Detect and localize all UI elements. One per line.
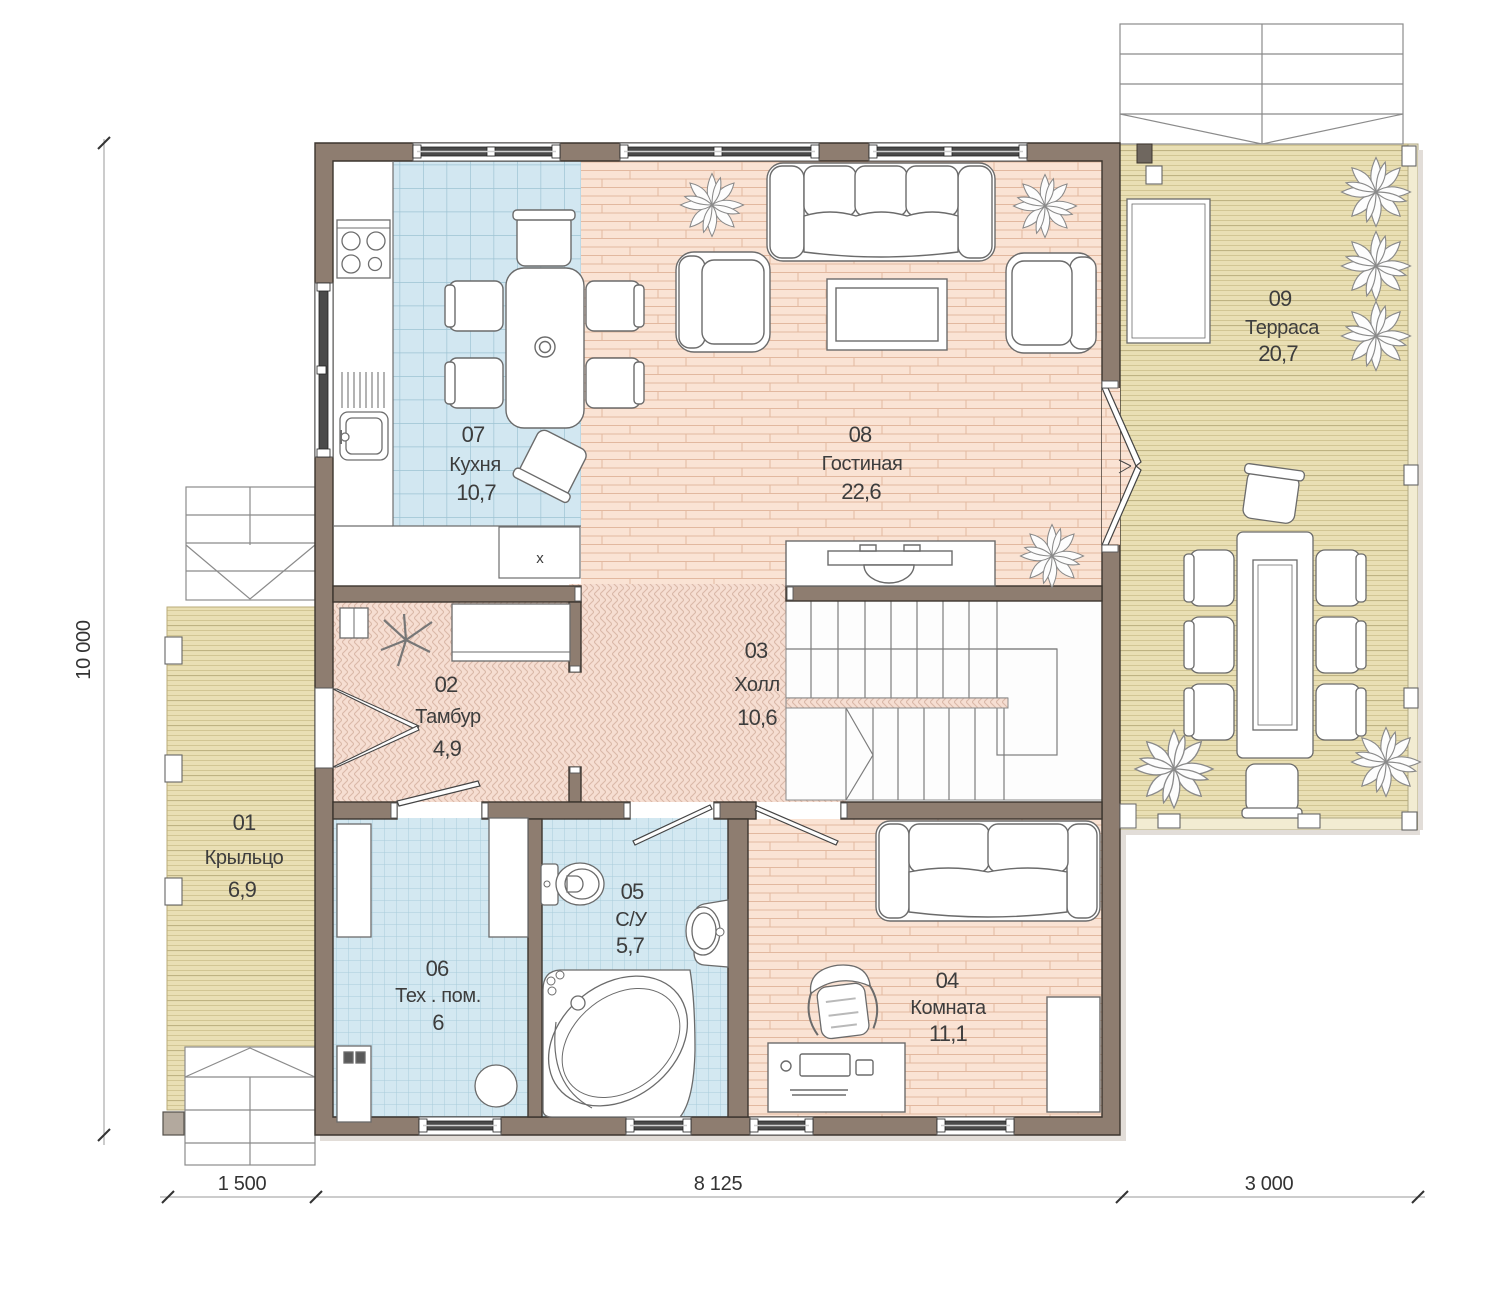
svg-text:09: 09	[1269, 286, 1292, 311]
svg-text:Гостиная: Гостиная	[822, 453, 903, 475]
svg-text:Тамбур: Тамбур	[415, 706, 481, 728]
svg-text:Крыльцо: Крыльцо	[205, 847, 284, 869]
svg-text:Тех . пом.: Тех . пом.	[395, 985, 481, 1007]
svg-text:х: х	[536, 550, 544, 567]
svg-text:Комната: Комната	[910, 997, 987, 1019]
svg-text:10,6: 10,6	[737, 705, 777, 730]
svg-text:Терраса: Терраса	[1245, 317, 1320, 339]
svg-text:11,1: 11,1	[929, 1021, 968, 1046]
svg-text:6: 6	[432, 1010, 444, 1035]
svg-text:Холл: Холл	[734, 674, 780, 696]
svg-text:5,7: 5,7	[616, 933, 645, 958]
svg-text:С/У: С/У	[615, 909, 647, 931]
svg-text:05: 05	[621, 879, 644, 904]
svg-text:02: 02	[435, 672, 458, 697]
svg-text:6,9: 6,9	[228, 877, 257, 902]
svg-text:4,9: 4,9	[433, 736, 462, 761]
svg-text:01: 01	[233, 810, 256, 835]
svg-text:06: 06	[426, 956, 449, 981]
svg-text:1 500: 1 500	[218, 1173, 267, 1195]
svg-text:10,7: 10,7	[456, 480, 496, 505]
svg-text:04: 04	[936, 968, 959, 993]
svg-text:3 000: 3 000	[1245, 1173, 1294, 1195]
svg-text:Кухня: Кухня	[449, 454, 501, 476]
svg-text:20,7: 20,7	[1258, 341, 1298, 366]
svg-text:8 125: 8 125	[694, 1173, 743, 1195]
svg-text:07: 07	[462, 422, 485, 447]
svg-text:03: 03	[745, 638, 768, 663]
svg-text:08: 08	[849, 422, 872, 447]
svg-text:10 000: 10 000	[73, 620, 95, 680]
svg-text:22,6: 22,6	[841, 479, 881, 504]
